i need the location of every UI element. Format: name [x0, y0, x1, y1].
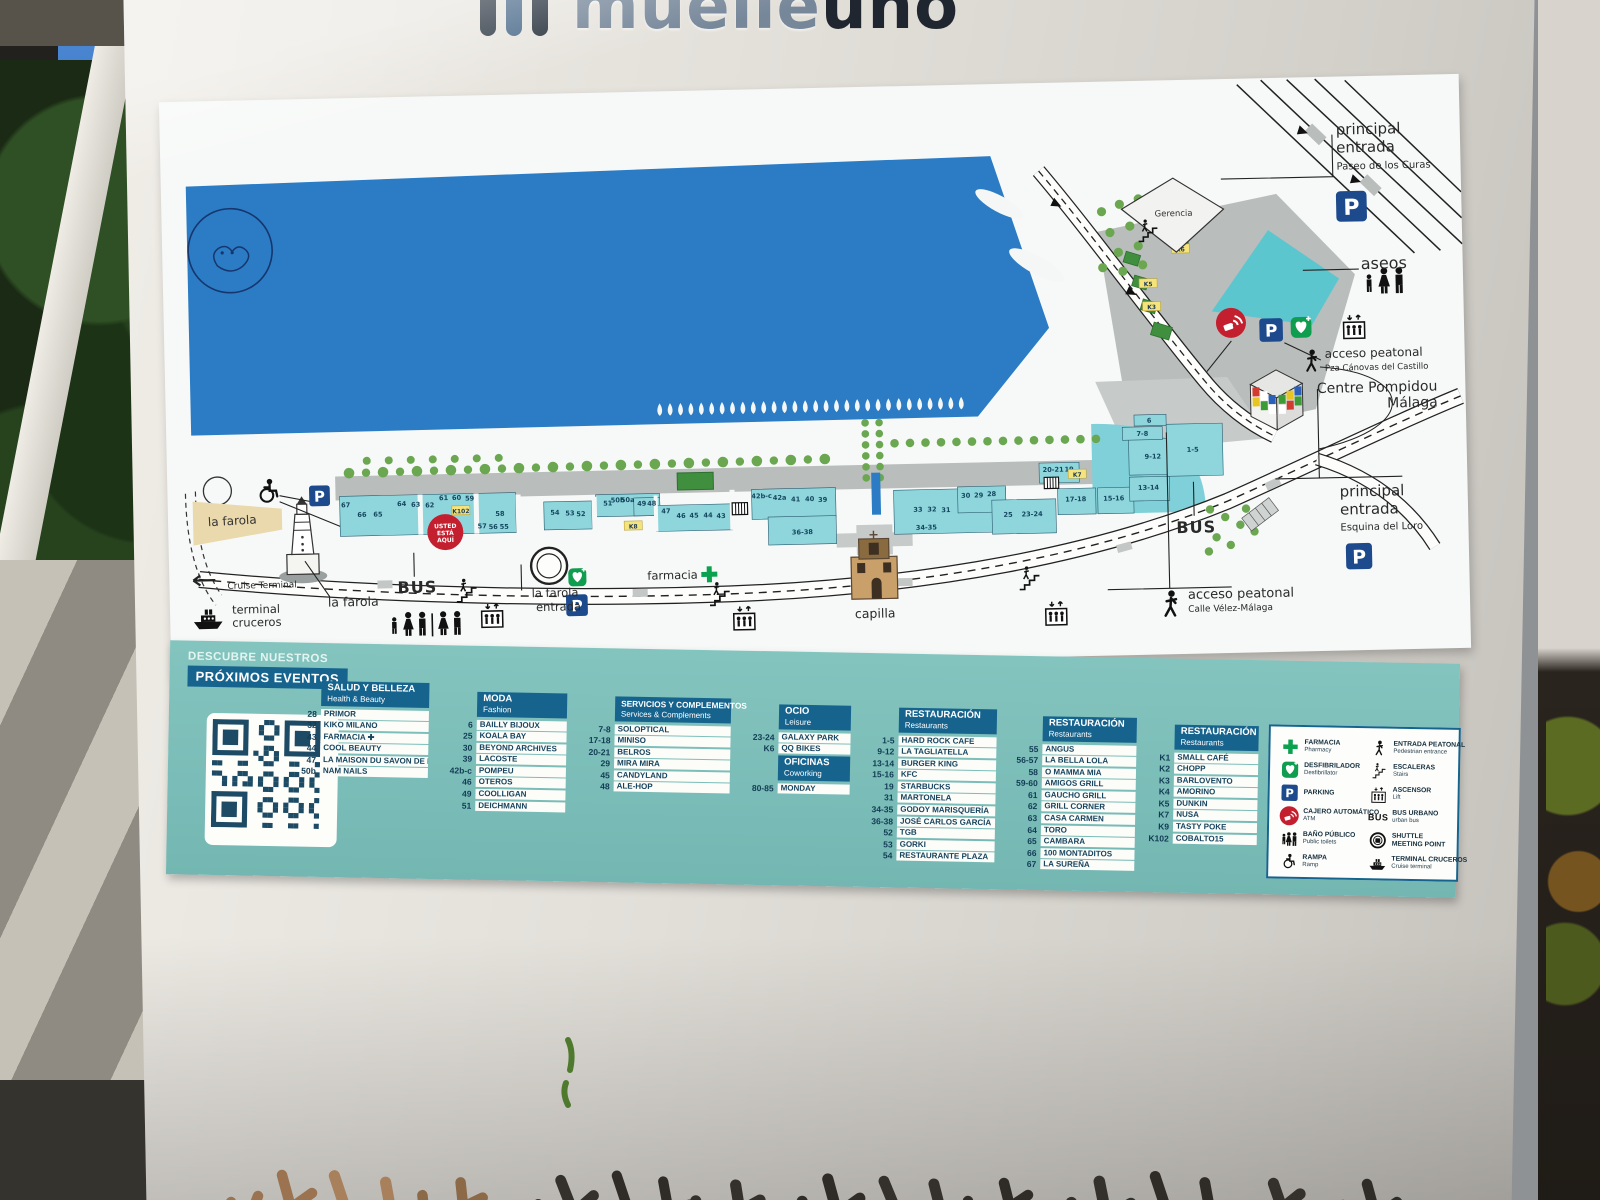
directory-row: K9TASTY POKE [1139, 821, 1257, 833]
svg-text:31: 31 [941, 506, 951, 514]
directory-row: 51DEICHMANN [441, 800, 565, 812]
legend-defibrillator: DESFIBRILADORDesfibrillator [1280, 758, 1380, 783]
directory-row: K6QQ BIKES [744, 743, 850, 755]
legend-shuttle: SHUTTLEMEETING POINT [1368, 828, 1468, 853]
ship-icon [1367, 853, 1387, 873]
svg-text:59: 59 [465, 494, 475, 502]
directory-row: 23-24GALAXY PARK [744, 731, 850, 743]
directory-col-rest1: RESTAURACIÓNRestaurants 1-5HARD ROCK CAF… [862, 707, 997, 864]
la-farola-flag-label: la farola [208, 513, 257, 530]
directory-row: 1-5HARD ROCK CAFE [864, 734, 996, 746]
svg-text:56: 56 [489, 523, 499, 531]
svg-text:AQUÍ: AQUÍ [437, 536, 455, 544]
directory-row: K1SMALL CAFÉ [1140, 751, 1258, 763]
directory-row: 59-60AMIGOS GRILL [1008, 778, 1136, 790]
directory-col-oficinas: OFICINASCoworking 80-85MONDAY [744, 755, 851, 796]
svg-text:61: 61 [439, 494, 449, 502]
pedestrian-icon [1369, 738, 1389, 758]
legend-ramp: RAMPARamp [1278, 850, 1378, 875]
pharmacy-cross-icon [1280, 736, 1300, 756]
svg-text:54: 54 [550, 509, 560, 517]
fountain [871, 473, 881, 515]
directory-row: 6BAILLY BIJOUX [443, 719, 567, 731]
svg-text:63: 63 [411, 501, 421, 509]
svg-text:66: 66 [357, 511, 367, 519]
wheelchair-icon [1278, 851, 1298, 871]
brand-bar-icon [532, 0, 548, 36]
directory-row: 36-38JOSÉ CARLOS GARCÍA [863, 816, 995, 828]
svg-text:43: 43 [716, 512, 726, 520]
legend-toilets: BAÑO PÚBLICOPublic toilets [1279, 827, 1379, 852]
svg-text:Cruise Terminal: Cruise Terminal [227, 580, 297, 592]
directory-row: 66100 MONTADITOS [1006, 847, 1134, 859]
svg-text:20-21: 20-21 [1042, 466, 1064, 474]
directory-row: K102COBALTO15 [1139, 833, 1257, 845]
svg-text:cruceros: cruceros [232, 615, 282, 630]
directory-col-servicios: SERVICIOS Y COMPLEMENTOSServices & Compl… [580, 696, 732, 796]
svg-text:53: 53 [565, 509, 575, 517]
svg-text:39: 39 [818, 496, 828, 504]
gerencia-label: Gerencia [1154, 209, 1192, 220]
directory-row: K4AMORINO [1140, 786, 1258, 798]
directory-row: 19STARBUCKS [864, 781, 996, 793]
defibrillator-icon [1280, 759, 1300, 779]
directory-row: K2CHOPP [1140, 763, 1258, 775]
legend-pharmacy: FARMACIAPharmacy [1280, 735, 1380, 760]
svg-text:46: 46 [676, 512, 686, 520]
svg-text:52: 52 [576, 510, 586, 518]
svg-text:17-18: 17-18 [1065, 495, 1087, 503]
svg-text:entrada: entrada [1340, 499, 1399, 518]
svg-text:principal: principal [1339, 481, 1404, 500]
svg-text:49: 49 [637, 500, 647, 508]
svg-text:acceso peatonal: acceso peatonal [1188, 586, 1295, 603]
svg-text:47: 47 [661, 507, 671, 515]
background-right-plants [1546, 700, 1600, 1030]
events-line1: DESCUBRE NUESTROS [188, 651, 348, 666]
directory-panel: DESCUBRE NUESTROS PRÓXIMOS EVENTOS SALUD… [166, 640, 1460, 898]
directory-row: 56-57LA BELLA LOLA [1008, 755, 1136, 767]
svg-text:K8: K8 [629, 523, 638, 530]
directory-row: K3BARLOVENTO [1140, 775, 1258, 787]
svg-text:BUS: BUS [1176, 517, 1216, 537]
directory-row: 32KIKO MILANO [287, 719, 429, 732]
directory-row: 65CAMBARA [1007, 836, 1135, 848]
svg-text:65: 65 [373, 510, 383, 518]
stairs-icon [1369, 761, 1389, 781]
svg-text:64: 64 [397, 500, 407, 508]
svg-text:42b-c: 42b-c [751, 492, 772, 500]
park [677, 472, 713, 490]
map-legend: FARMACIAPharmacy DESFIBRILADORDesfibrill… [1266, 724, 1461, 881]
svg-text:23-24: 23-24 [1021, 510, 1043, 518]
directory-row: 63CASA CARMEN [1007, 813, 1135, 825]
port-map: 676665646362616059585756555453525150b50a… [159, 74, 1471, 676]
svg-text:40: 40 [805, 495, 815, 503]
svg-text:BUS: BUS [397, 577, 437, 597]
svg-text:aseos: aseos [1360, 253, 1407, 273]
svg-text:K5: K5 [1144, 281, 1153, 288]
directory-col-rest3: RESTAURACIÓNRestaurants K1SMALL CAFÉK2CH… [1139, 724, 1259, 846]
svg-text:Calle Vélez-Málaga: Calle Vélez-Málaga [1188, 602, 1273, 615]
svg-text:44: 44 [703, 511, 713, 519]
legend-stairs: ESCALERASStairs [1369, 759, 1469, 784]
directory-row: K7NUSA [1139, 809, 1257, 821]
svg-text:28: 28 [987, 490, 997, 498]
bus-icon: BUS [1368, 807, 1388, 827]
directory-row: 62GRILL CORNER [1007, 801, 1135, 813]
svg-text:60: 60 [452, 494, 462, 502]
brand-text-muelle: muelle [572, 0, 821, 44]
svg-text:1-5: 1-5 [1187, 446, 1199, 454]
svg-text:15-16: 15-16 [1103, 494, 1125, 502]
directory-row: 9-12LA TAGLIATELLA [864, 746, 996, 758]
directory-row: K5DUNKIN [1139, 798, 1257, 810]
svg-text:57: 57 [478, 522, 488, 530]
svg-text:58: 58 [495, 510, 505, 518]
map-panel: 676665646362616059585756555453525150b50a… [159, 74, 1471, 676]
atm-icon [1279, 805, 1299, 825]
lift-icon [1368, 784, 1388, 804]
svg-text:45: 45 [689, 512, 699, 520]
directory-row: 39LACOSTE [442, 753, 566, 765]
legend-bus: BUSBUS URBANOurban bus [1368, 805, 1468, 830]
directory-row: 54RESTAURANTE PLAZA [862, 850, 994, 862]
directory-row: 30BEYOND ARCHIVES [442, 742, 566, 754]
directory-col-salud: SALUD Y BELLEZAHealth & Beauty 28PRIMOR3… [286, 680, 430, 780]
directory-row: 53GORKI [863, 839, 995, 851]
legend-cruise: TERMINAL CRUCEROSCruise terminal [1367, 851, 1467, 876]
svg-text:principal: principal [1336, 119, 1401, 138]
svg-text:farmacia: farmacia [647, 568, 698, 583]
directory-row: 28PRIMOR [287, 708, 429, 721]
harbour-water [185, 155, 1051, 436]
directory-row: 31MARTONELA [863, 792, 995, 804]
directory-row: 20-21BELROS [580, 746, 730, 759]
svg-text:K102: K102 [452, 508, 469, 515]
svg-text:capilla: capilla [855, 605, 896, 621]
svg-text:7-8: 7-8 [1136, 430, 1148, 438]
svg-text:la farola: la farola [532, 585, 579, 600]
directory-row: 45CANDYLAND [580, 770, 730, 783]
road-arrow [1350, 174, 1361, 183]
toilets-icon [1279, 828, 1299, 848]
directory-row: 58O MAMMA MIA [1008, 766, 1136, 778]
directory-col-ocio: OCIOLeisure 23-24GALAXY PARKK6QQ BIKES [744, 704, 851, 757]
svg-text:entrada: entrada [536, 599, 581, 614]
svg-text:acceso peatonal: acceso peatonal [1325, 345, 1423, 361]
svg-text:42a: 42a [773, 494, 787, 502]
directory-row: 15-16KFC [864, 769, 996, 781]
svg-text:32: 32 [927, 505, 937, 513]
ramp [1242, 498, 1279, 531]
directory-row: 47LA MAISON DU SAVON DE MARSEILLE [286, 754, 428, 767]
svg-text:entrada: entrada [1336, 137, 1395, 156]
directory-row: 42b-cPOMPEU [442, 765, 566, 777]
legend-lift: ASCENSORLift [1368, 782, 1468, 807]
directory-col-rest2: RESTAURACIÓNRestaurants 55ANGUS56-57LA B… [1006, 716, 1137, 873]
svg-text:50a: 50a [621, 496, 635, 504]
svg-text:29: 29 [974, 491, 984, 499]
directory-row: 7-8SOLOPTICAL [581, 723, 731, 736]
directory-row: 48ALE-HOP [580, 781, 730, 794]
directory-row: 80-85MONDAY [744, 782, 850, 794]
directory-row: 34-35GODOY MARISQUERÍA [863, 804, 995, 816]
svg-text:25: 25 [1003, 511, 1013, 519]
directory-row: 25KOALA BAY [442, 730, 566, 742]
svg-text:41: 41 [791, 495, 801, 503]
svg-text:Pza Cánovas del Castillo: Pza Cánovas del Castillo [1325, 362, 1429, 374]
parking-icon [1279, 782, 1299, 802]
brand-text-uno: uno [821, 0, 959, 44]
directory-row: 61GAUCHO GRILL [1007, 789, 1135, 801]
legend-parking: PARKING [1279, 781, 1379, 806]
svg-text:Paseo de los Curas: Paseo de los Curas [1336, 160, 1430, 173]
svg-text:48: 48 [647, 499, 657, 507]
directory-row: 29MIRA MIRA [580, 758, 730, 771]
coral-cutout-band [150, 975, 1470, 1200]
svg-text:33: 33 [913, 506, 923, 514]
shuttle-meeting-point-icon [1368, 830, 1388, 850]
directory-row: 52TGB [863, 827, 995, 839]
svg-text:62: 62 [425, 501, 435, 509]
directory-row: 44COOL BEAUTY [286, 743, 428, 756]
svg-text:K7: K7 [1073, 472, 1082, 479]
svg-text:Esquina del Loro: Esquina del Loro [1340, 521, 1423, 534]
svg-text:55: 55 [500, 523, 510, 531]
svg-text:6: 6 [1147, 417, 1152, 425]
svg-text:Málaga: Málaga [1387, 394, 1438, 411]
legend-pedestrian: ENTRADA PEATONALPedestrian entrance [1369, 736, 1469, 761]
directory-row: 55ANGUS [1008, 743, 1136, 755]
directory-row: 43FARMACIA ✚ [286, 731, 428, 744]
svg-text:13-14: 13-14 [1138, 484, 1160, 492]
directory-col-moda: MODAFashion 6BAILLY BIJOUX25KOALA BAY30B… [441, 691, 567, 814]
directory-row: 49COOLLIGAN [441, 788, 565, 800]
brand-bar-icon [506, 0, 522, 36]
directory-row: 13-14BURGER KING [864, 758, 996, 770]
directory-row: 46OTEROS [442, 777, 566, 789]
brand-logo: muelleuno [480, 0, 1200, 44]
svg-text:la farola: la farola [328, 594, 379, 610]
svg-text:36-38: 36-38 [792, 528, 814, 536]
svg-text:9-12: 9-12 [1145, 452, 1162, 460]
brand-bar-icon [480, 0, 496, 36]
directory-row: 64TORO [1007, 824, 1135, 836]
directory-row: 67LA SUREÑA [1006, 859, 1134, 871]
svg-text:30: 30 [961, 492, 971, 500]
svg-text:K3: K3 [1147, 304, 1156, 311]
directory-row: 50bNAM NAILS [286, 766, 428, 779]
svg-text:34-35: 34-35 [916, 523, 938, 531]
legend-atm: CAJERO AUTOMÁTICOATM [1279, 804, 1379, 829]
directory-row: 17-18MINISO [580, 735, 730, 748]
lighthouse [278, 496, 328, 584]
svg-text:67: 67 [341, 501, 351, 509]
